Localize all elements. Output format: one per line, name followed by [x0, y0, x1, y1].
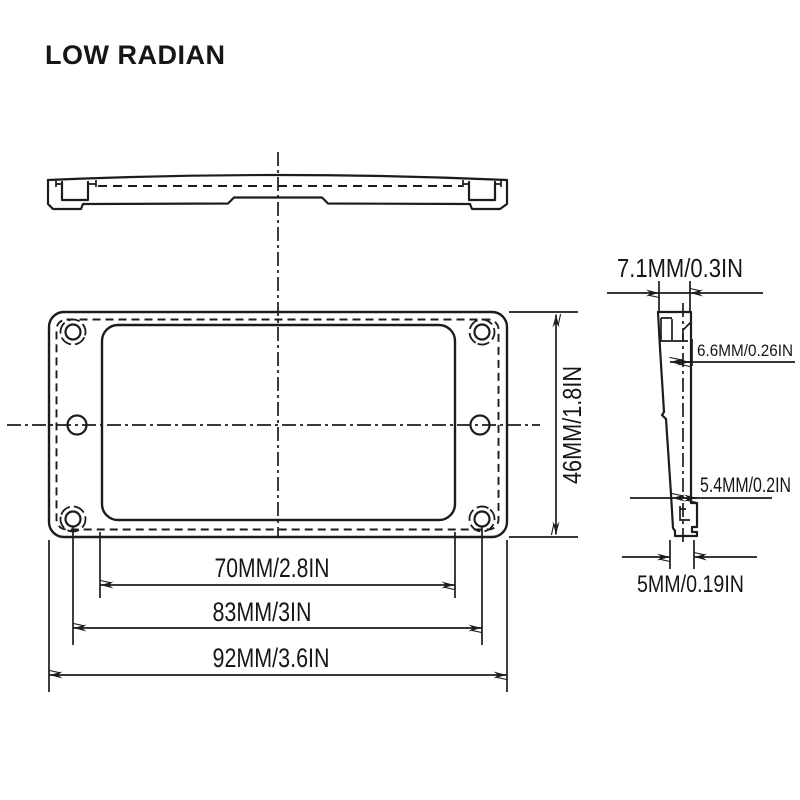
drawing-canvas: 46MM/1.8IN 70MM/2.8IN 83MM/3IN 92MM/3.6I…: [0, 0, 800, 800]
dimension-side-top-width: 7.1MM/0.3IN: [607, 253, 763, 311]
dimension-side-bottom-width: 5MM/0.19IN: [622, 540, 757, 598]
profile-right-notch: [469, 182, 495, 200]
dimension-hole-spacing: 83MM/3IN: [73, 527, 482, 645]
dim-side-bottom-width-label: 5MM/0.19IN: [637, 571, 744, 598]
side-profile-boss-detail: [661, 318, 691, 341]
dim-opening-width-label: 70MM/2.8IN: [215, 553, 330, 583]
front-view: [7, 152, 540, 538]
dim-hole-spacing-label: 83MM/3IN: [213, 597, 312, 627]
dim-side-lower-depth-label: 5.4MM/0.2IN: [700, 474, 791, 497]
side-section-view: 7.1MM/0.3IN 6.6MM/0.26IN 5.4MM/0.2IN: [607, 253, 795, 598]
profile-left-notch: [62, 182, 88, 200]
technical-drawing-page: LOW RADIAN: [0, 0, 800, 800]
dim-height-label: 46MM/1.8IN: [557, 366, 587, 484]
dimension-side-upper-depth: 6.6MM/0.26IN: [670, 339, 795, 366]
dimension-side-lower-depth: 5.4MM/0.2IN: [630, 474, 791, 498]
dimension-opening-width: 70MM/2.8IN: [100, 532, 455, 598]
dim-side-top-width-label: 7.1MM/0.3IN: [617, 253, 743, 283]
side-profile-foot-detail: [680, 506, 690, 520]
dim-overall-width-label: 92MM/3.6IN: [213, 643, 330, 673]
dim-side-upper-depth-label: 6.6MM/0.26IN: [697, 341, 793, 360]
